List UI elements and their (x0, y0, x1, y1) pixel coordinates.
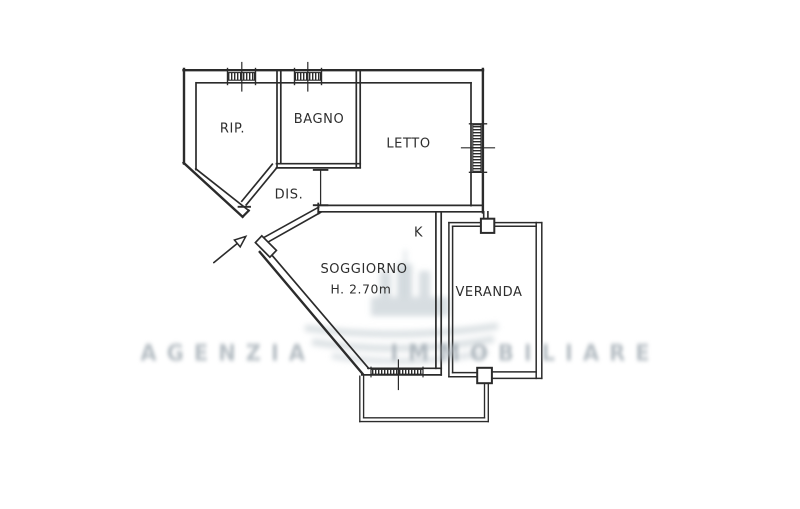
room-label-rip: RIP. (220, 122, 245, 137)
floor-plan-page: RIP. BAGNO LETTO DIS. K SOGGIORNO H. 2.7… (0, 0, 800, 509)
ceiling-height-note: H. 2.70m (330, 283, 391, 297)
room-label-bagno: BAGNO (294, 112, 345, 127)
room-label-veranda: VERANDA (455, 285, 522, 300)
room-label-dis: DIS. (275, 188, 304, 203)
room-label-kitchen-corner: K (414, 226, 423, 241)
entrance-arrow-icon (214, 236, 246, 262)
window-symbol-top-center (295, 63, 322, 92)
room-label-soggiorno: SOGGIORNO (320, 262, 407, 277)
window-symbol-top-left (228, 63, 256, 92)
room-label-letto: LETTO (386, 137, 430, 152)
balcony-parapet (360, 376, 489, 421)
window-symbol-letto (462, 124, 495, 173)
floor-plan-drawing: RIP. BAGNO LETTO DIS. K SOGGIORNO H. 2.7… (0, 0, 800, 509)
watermark-text: AGENZIA IMMOBILIARE (0, 340, 800, 365)
